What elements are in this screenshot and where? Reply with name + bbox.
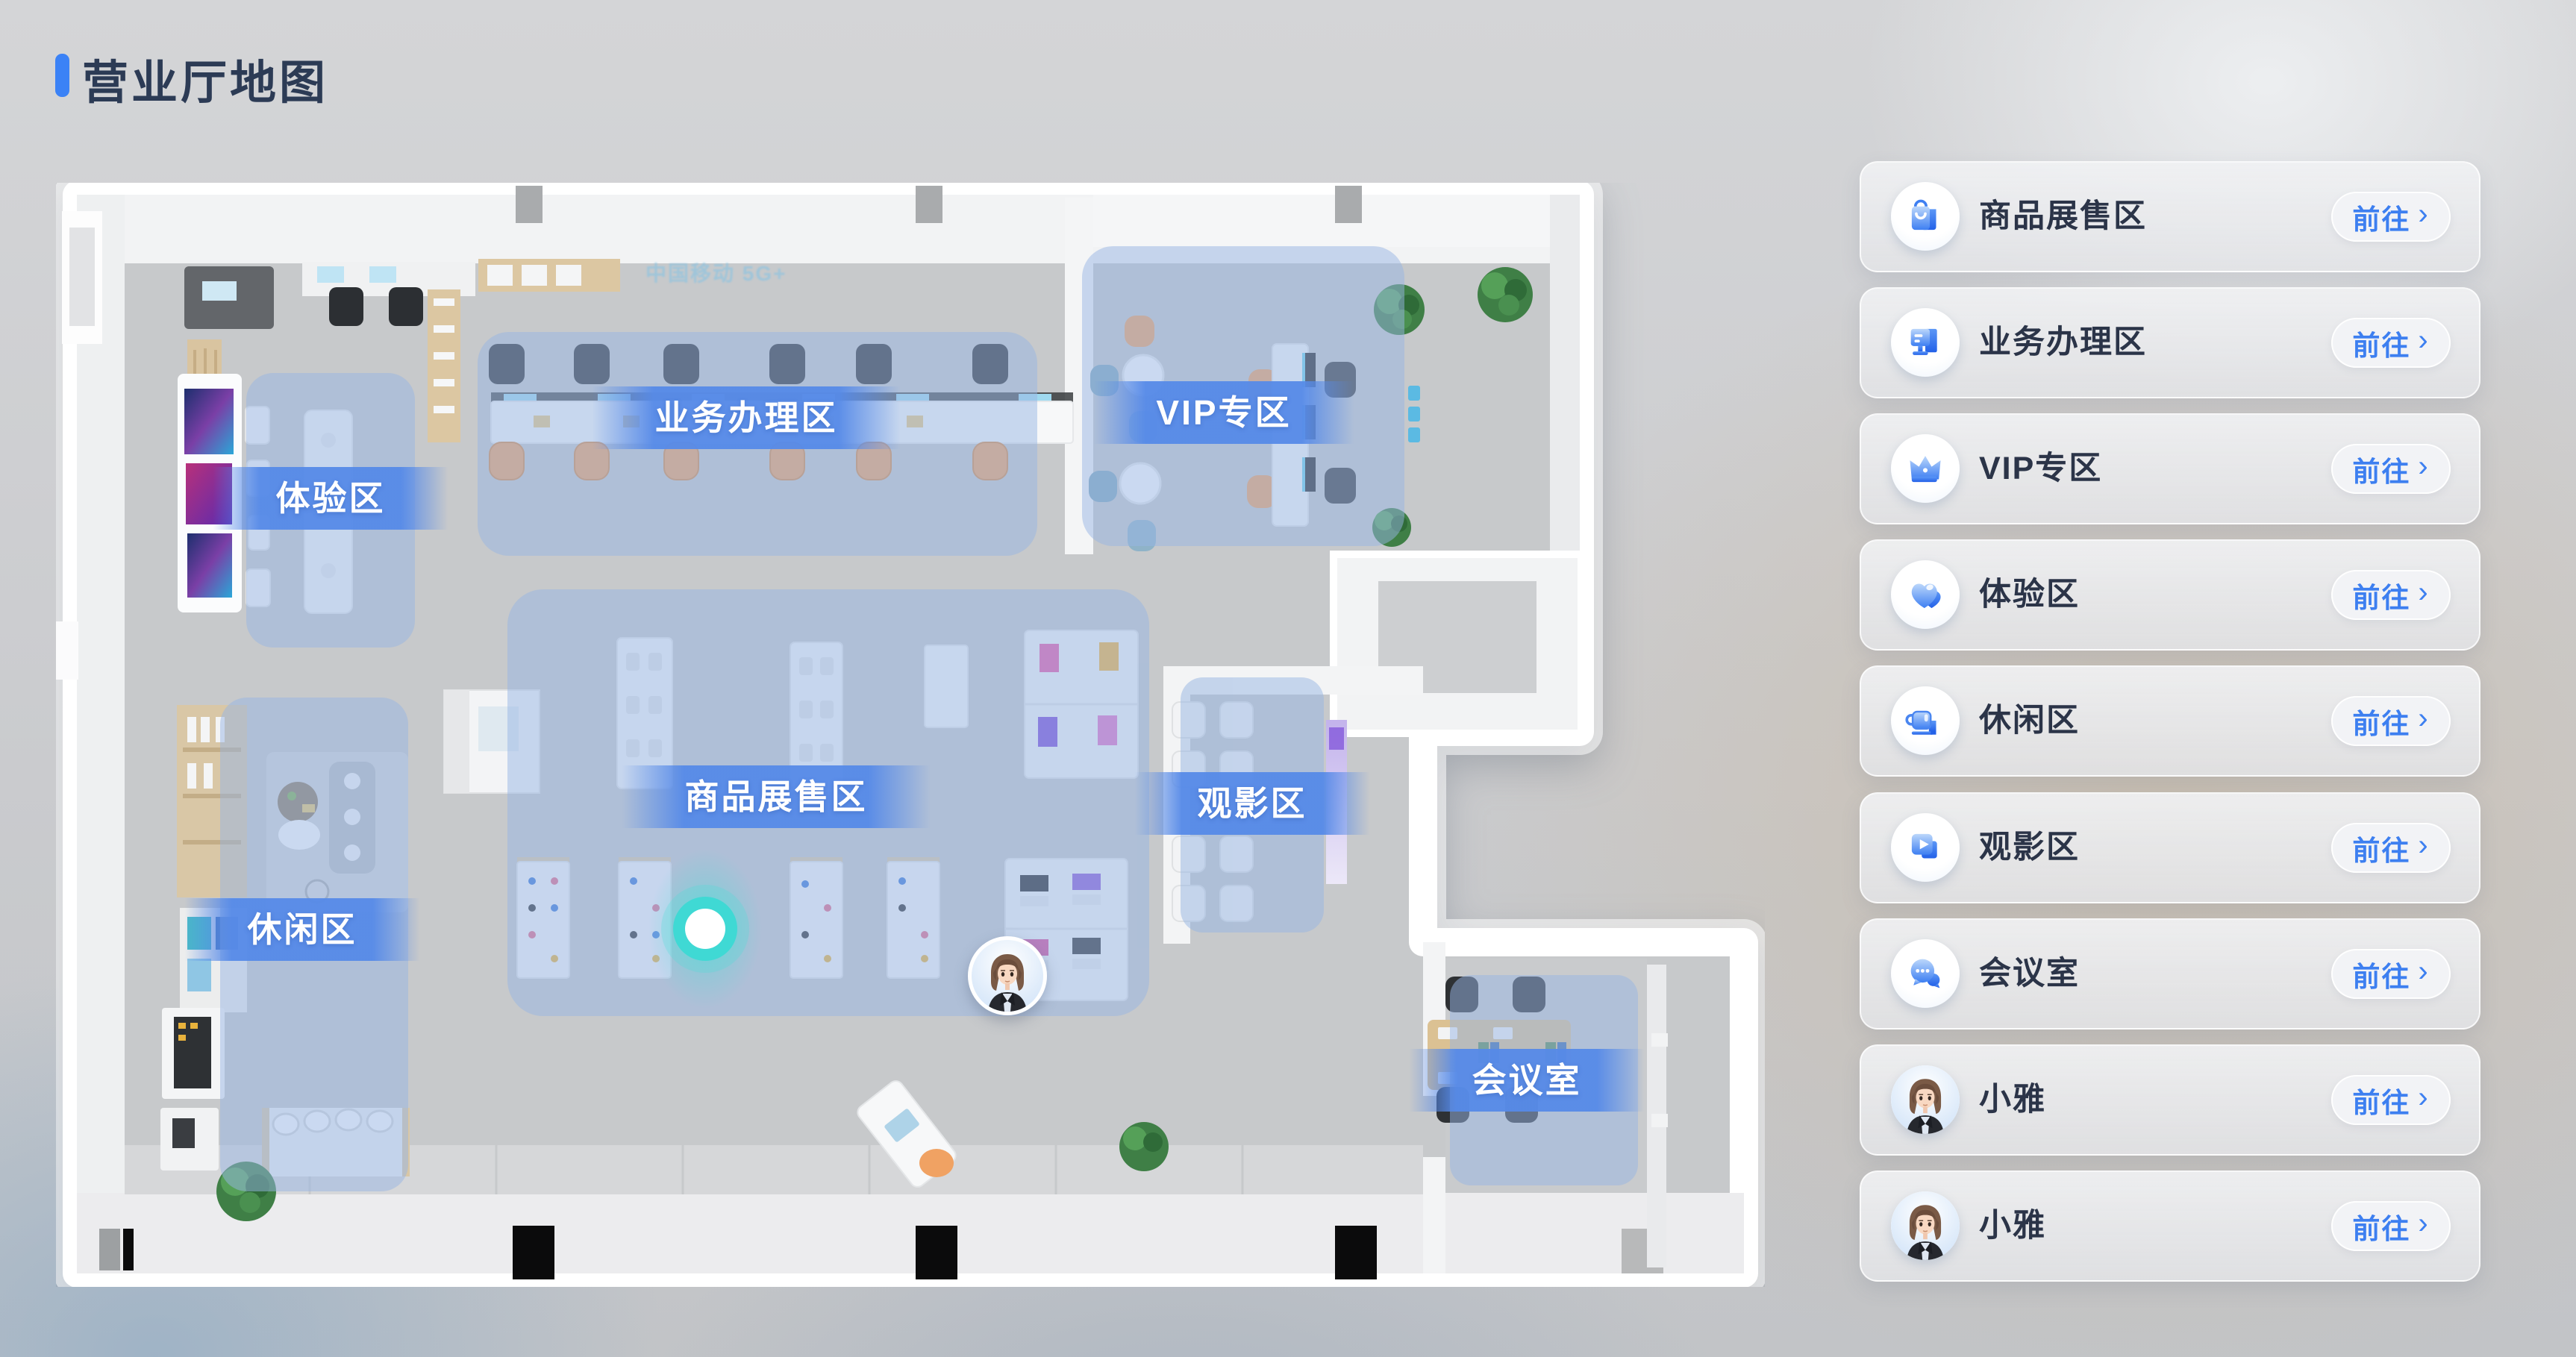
sidebar-item-business[interactable]: 业务办理区 前往› <box>1860 287 2480 398</box>
business-terminal-icon <box>1904 321 1947 364</box>
zone-label-leisure: 休闲区 <box>185 898 420 961</box>
go-button[interactable]: 前往› <box>2331 949 2451 999</box>
chevron-right-icon: › <box>2418 1207 2429 1241</box>
sidebar-item-xiaoya-2[interactable]: 小雅 前往› <box>1860 1170 2480 1282</box>
chevron-right-icon: › <box>2418 1081 2429 1115</box>
zone-label-meeting: 会议室 <box>1410 1049 1645 1112</box>
go-button[interactable]: 前往› <box>2331 1075 2451 1125</box>
zone-label-vip: VIP专区 <box>1093 381 1354 444</box>
sidebar-item-meeting[interactable]: 会议室 前往› <box>1860 918 2480 1029</box>
icon-bubble <box>1891 939 1960 1008</box>
xiaoya-avatar-icon <box>972 940 1043 1012</box>
chevron-right-icon: › <box>2418 702 2429 736</box>
sidebar-item-label: 会议室 <box>1979 920 2080 1028</box>
chevron-right-icon: › <box>2418 576 2429 609</box>
sidebar-item-shop[interactable]: 商品展售区 前往› <box>1860 161 2480 272</box>
go-button[interactable]: 前往› <box>2331 823 2451 873</box>
chevron-right-icon: › <box>2418 450 2429 483</box>
icon-bubble <box>1891 686 1960 755</box>
zone-label-shop: 商品展售区 <box>622 765 931 828</box>
chevron-right-icon: › <box>2418 324 2429 357</box>
go-button[interactable]: 前往› <box>2331 1201 2451 1251</box>
xiaoya-avatar-icon <box>1891 1065 1960 1134</box>
zone-label-business: 业务办理区 <box>593 386 901 449</box>
sidebar-item-xiaoya-1[interactable]: 小雅 前往› <box>1860 1044 2480 1156</box>
icon-bubble <box>1891 560 1960 629</box>
zone-label-cinema: 观影区 <box>1135 772 1370 835</box>
chat-bubbles-icon <box>1904 952 1947 995</box>
wooden-display-shelf <box>428 289 460 442</box>
coffee-cup-icon <box>1904 699 1947 742</box>
utility-block <box>1334 554 1581 733</box>
sidebar-item-label: 观影区 <box>1979 794 2080 902</box>
sidebar-item-experience[interactable]: 体验区 前往› <box>1860 539 2480 651</box>
go-button[interactable]: 前往› <box>2331 696 2451 746</box>
xiaoya-avatar-icon <box>1891 1191 1960 1260</box>
sidebar-item-label: 休闲区 <box>1979 667 2080 775</box>
page-title: 营业厅地图 <box>82 45 328 112</box>
crown-icon <box>1904 447 1947 490</box>
sidebar-item-label: 商品展售区 <box>1979 163 2147 271</box>
chevron-right-icon: › <box>2418 955 2429 988</box>
video-play-icon <box>1904 826 1947 869</box>
sidebar-item-vip[interactable]: VIP专区 前往› <box>1860 413 2480 524</box>
go-button[interactable]: 前往› <box>2331 318 2451 368</box>
sidebar-item-label: 小雅 <box>1979 1046 2046 1154</box>
icon-bubble <box>1891 813 1960 882</box>
title-accent-bar <box>55 54 69 97</box>
business-hall-map-page: { "page": { "title": "营业厅地图" }, "map": {… <box>0 0 2576 1357</box>
xiaoya-map-avatar[interactable] <box>968 936 1047 1015</box>
sidebar-item-label: 小雅 <box>1979 1172 2046 1280</box>
chevron-right-icon: › <box>2418 829 2429 862</box>
icon-bubble <box>1891 182 1960 251</box>
china-mobile-5g-wall-sign: 中国移动 5G+ <box>645 257 787 287</box>
icon-bubble <box>1891 1191 1960 1260</box>
sidebar-item-label: 业务办理区 <box>1979 289 2147 397</box>
sidebar-item-label: 体验区 <box>1979 541 2080 649</box>
go-button[interactable]: 前往› <box>2331 570 2451 620</box>
chevron-right-icon: › <box>2418 198 2429 231</box>
zone-label-experience: 体验区 <box>213 467 448 530</box>
icon-bubble <box>1891 1065 1960 1134</box>
floor-plan-rendering <box>56 183 1765 1287</box>
go-button[interactable]: 前往› <box>2331 192 2451 242</box>
sidebar-item-label: VIP专区 <box>1979 415 2102 523</box>
go-button[interactable]: 前往› <box>2331 444 2451 494</box>
vending-machines <box>160 1008 225 1170</box>
icon-bubble <box>1891 434 1960 503</box>
sidebar-item-cinema[interactable]: 观影区 前往› <box>1860 792 2480 903</box>
icon-bubble <box>1891 308 1960 377</box>
hall-floor-plan[interactable]: 中国移动 5G+ 业务办理区 VIP专区 体验区 商品展售区 观影区 休闲区 会… <box>56 183 1765 1287</box>
hearts-icon <box>1904 573 1947 616</box>
shopping-bag-icon <box>1904 195 1947 238</box>
sidebar-item-leisure[interactable]: 休闲区 前往› <box>1860 665 2480 777</box>
